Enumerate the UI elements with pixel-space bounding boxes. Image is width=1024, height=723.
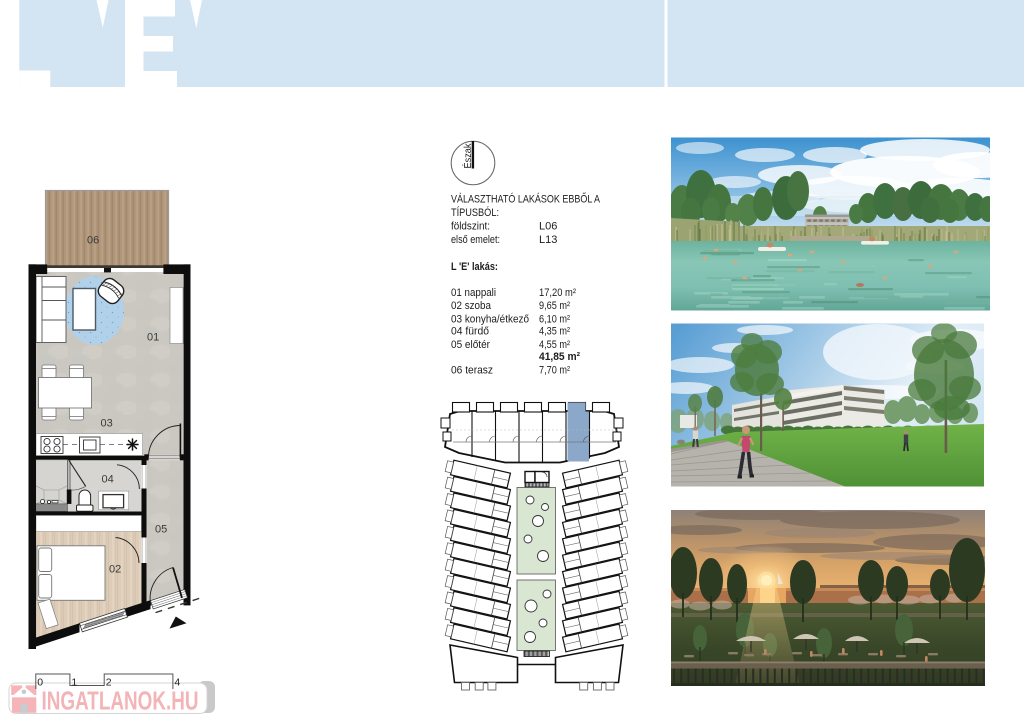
svg-text:TÍPUSBÓL:: TÍPUSBÓL: — [451, 206, 499, 219]
svg-text:L 'E' lakás:: L 'E' lakás: — [451, 261, 498, 273]
svg-text:01 nappali: 01 nappali — [451, 287, 496, 299]
svg-text:0: 0 — [37, 677, 43, 689]
svg-text:03: 03 — [101, 418, 113, 430]
svg-text:01: 01 — [147, 332, 159, 344]
svg-text:06 terasz: 06 terasz — [451, 364, 493, 376]
svg-text:02: 02 — [109, 564, 121, 576]
svg-text:05 előtér: 05 előtér — [451, 339, 490, 351]
svg-text:földszint:: földszint: — [451, 221, 490, 233]
svg-text:04 fürdő: 04 fürdő — [451, 326, 489, 338]
svg-text:első emelet:: első emelet: — [451, 234, 500, 246]
svg-text:4,55 m²: 4,55 m² — [539, 339, 570, 351]
svg-text:9,65 m²: 9,65 m² — [539, 300, 570, 312]
svg-text:4,35 m²: 4,35 m² — [539, 326, 570, 338]
svg-text:4: 4 — [174, 677, 180, 689]
svg-text:L13: L13 — [539, 234, 557, 246]
svg-text:02 szoba: 02 szoba — [451, 300, 492, 312]
svg-text:06: 06 — [87, 235, 99, 247]
svg-text:Észak: Észak — [461, 143, 474, 169]
svg-text:2: 2 — [106, 677, 112, 689]
svg-text:03 konyha/étkező: 03 konyha/étkező — [451, 313, 529, 325]
svg-text:1: 1 — [71, 677, 77, 689]
svg-text:7,70 m²: 7,70 m² — [539, 364, 570, 376]
svg-text:05: 05 — [155, 524, 167, 536]
svg-text:6,10 m²: 6,10 m² — [539, 313, 570, 325]
svg-text:VÁLASZTHATÓ LAKÁSOK EBBŐL A: VÁLASZTHATÓ LAKÁSOK EBBŐL A — [451, 192, 601, 206]
svg-text:04: 04 — [102, 474, 114, 486]
svg-text:INGATLANOK.HU: INGATLANOK.HU — [42, 686, 199, 716]
svg-text:17,20 m²: 17,20 m² — [539, 287, 576, 299]
svg-text:L06: L06 — [539, 221, 557, 233]
svg-text:41,85 m²: 41,85 m² — [539, 351, 580, 363]
